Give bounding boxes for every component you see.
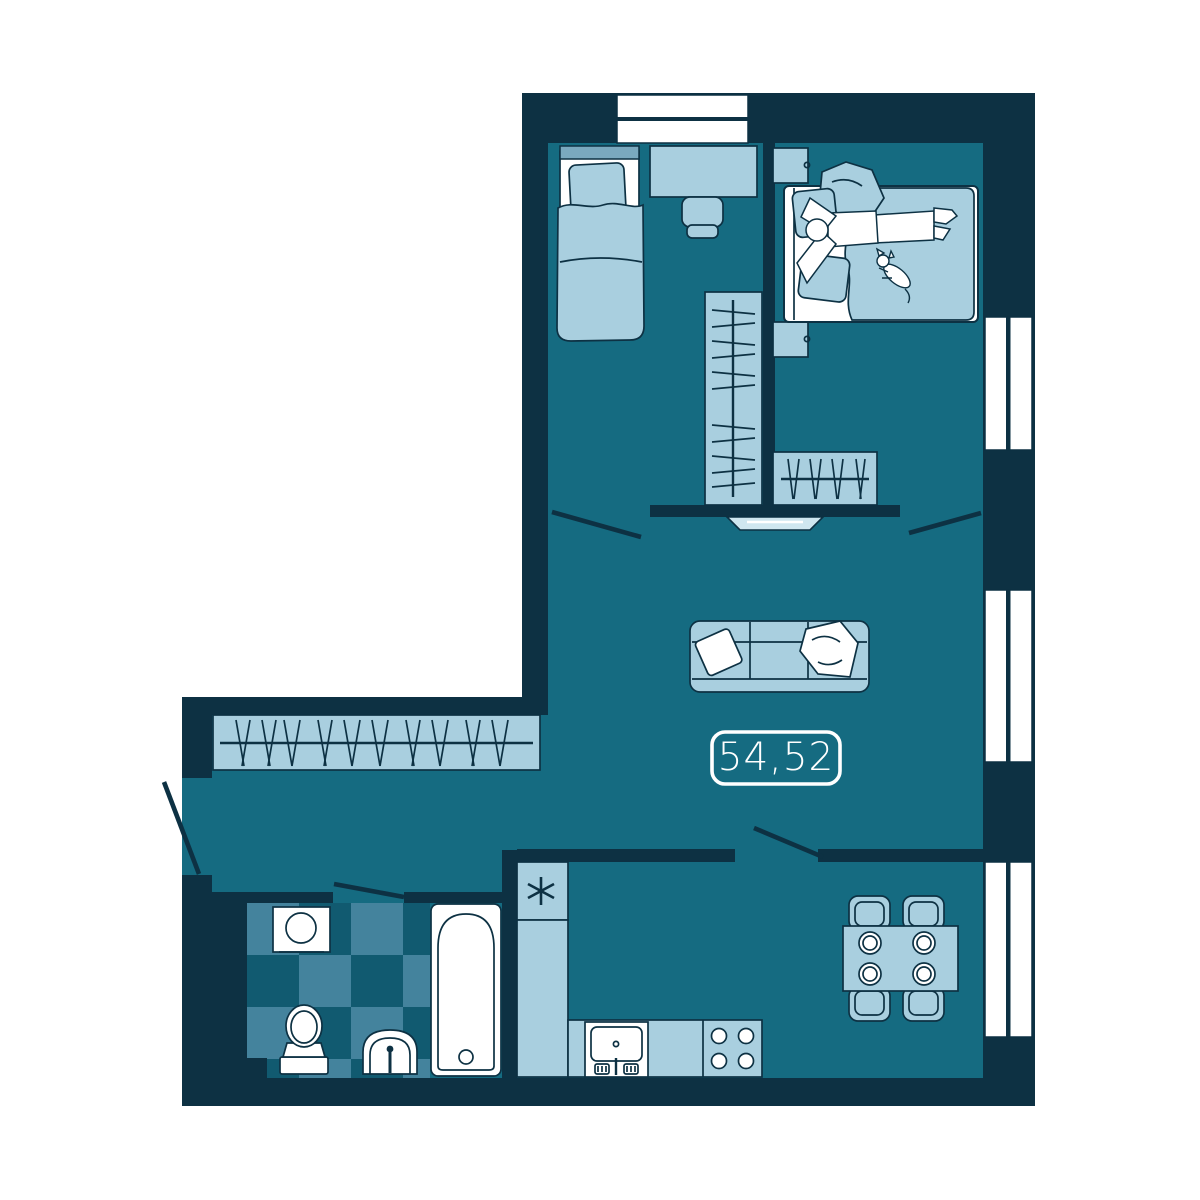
double-bed bbox=[784, 162, 978, 322]
wall-left-below-door bbox=[182, 875, 212, 1106]
kitchen-sink bbox=[585, 1022, 648, 1077]
dining-chair bbox=[903, 987, 944, 1021]
nightstand-top bbox=[773, 148, 808, 183]
hallway bbox=[213, 715, 540, 770]
wardrobe bbox=[705, 292, 762, 505]
entrance-threshold bbox=[182, 778, 212, 875]
washing-machine bbox=[273, 907, 330, 952]
wall-top bbox=[522, 93, 1035, 143]
single-bed bbox=[557, 146, 644, 341]
nightstand-bottom bbox=[773, 322, 808, 357]
wall-tv-partition bbox=[650, 505, 900, 517]
wall-bottom bbox=[182, 1078, 1035, 1106]
floor-plan-drawing: 54,52 bbox=[0, 0, 1200, 1200]
wall-left-upper bbox=[522, 93, 548, 715]
dining-chair bbox=[849, 987, 890, 1021]
desk-chair bbox=[682, 197, 723, 238]
wall-kitchen-left bbox=[502, 850, 517, 1078]
area-label: 54,52 bbox=[712, 732, 840, 784]
dining-table bbox=[843, 926, 958, 991]
wall-left-above-door bbox=[182, 697, 212, 778]
floor-plan: 54,52 bbox=[0, 0, 1200, 1200]
dining-chair bbox=[903, 896, 944, 930]
tv bbox=[727, 517, 823, 530]
dining-chair bbox=[849, 896, 890, 930]
wall-bathroom-top-left bbox=[212, 892, 333, 903]
wall-bathroom-top-right bbox=[404, 892, 517, 903]
wall-living-kitchen-right bbox=[818, 849, 983, 862]
window-right-dining bbox=[985, 862, 1032, 1037]
storage-bench bbox=[773, 452, 877, 505]
sofa bbox=[690, 621, 869, 692]
window-right-bedroom bbox=[985, 317, 1032, 450]
desk bbox=[650, 146, 757, 197]
window-right-living bbox=[985, 590, 1032, 762]
fridge bbox=[517, 862, 568, 920]
window-top bbox=[617, 95, 748, 143]
bathtub bbox=[431, 904, 501, 1076]
wall-hallway-top bbox=[182, 697, 548, 715]
wall-bathroom-left bbox=[212, 892, 247, 1078]
bed-headboard bbox=[560, 146, 639, 159]
person-head bbox=[806, 219, 828, 241]
coat-rack bbox=[213, 715, 540, 770]
kitchen-counter-left bbox=[517, 920, 568, 1077]
bed-blanket bbox=[557, 204, 644, 341]
bathroom-sink bbox=[363, 1030, 417, 1074]
person-legs bbox=[874, 211, 934, 243]
area-value: 54,52 bbox=[718, 735, 835, 780]
wall-living-kitchen-left bbox=[517, 849, 735, 862]
